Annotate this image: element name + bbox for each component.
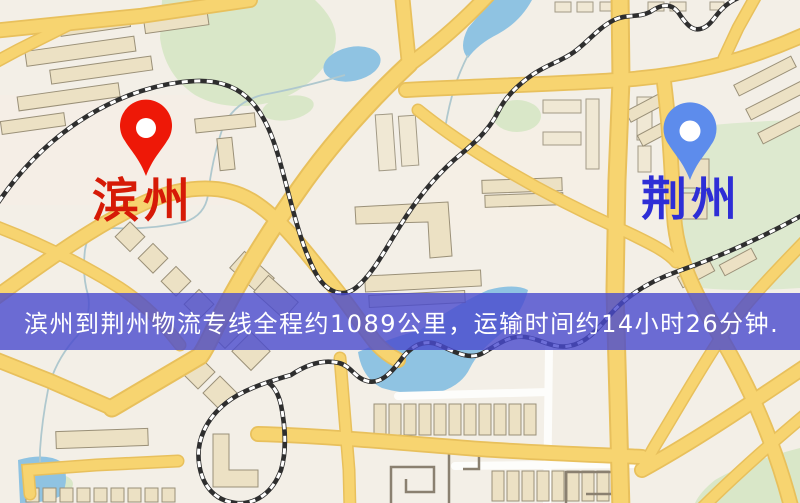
map-graphic <box>0 0 800 503</box>
destination-city-label: 荆州 <box>641 176 741 222</box>
route-info-banner: 滨州到荆州物流专线全程约1089公里，运输时间约14小时26分钟. <box>0 293 800 350</box>
origin-city-label: 滨州 <box>92 178 194 225</box>
route-info-text: 滨州到荆州物流专线全程约1089公里，运输时间约14小时26分钟. <box>24 304 779 339</box>
map-canvas <box>0 0 800 503</box>
